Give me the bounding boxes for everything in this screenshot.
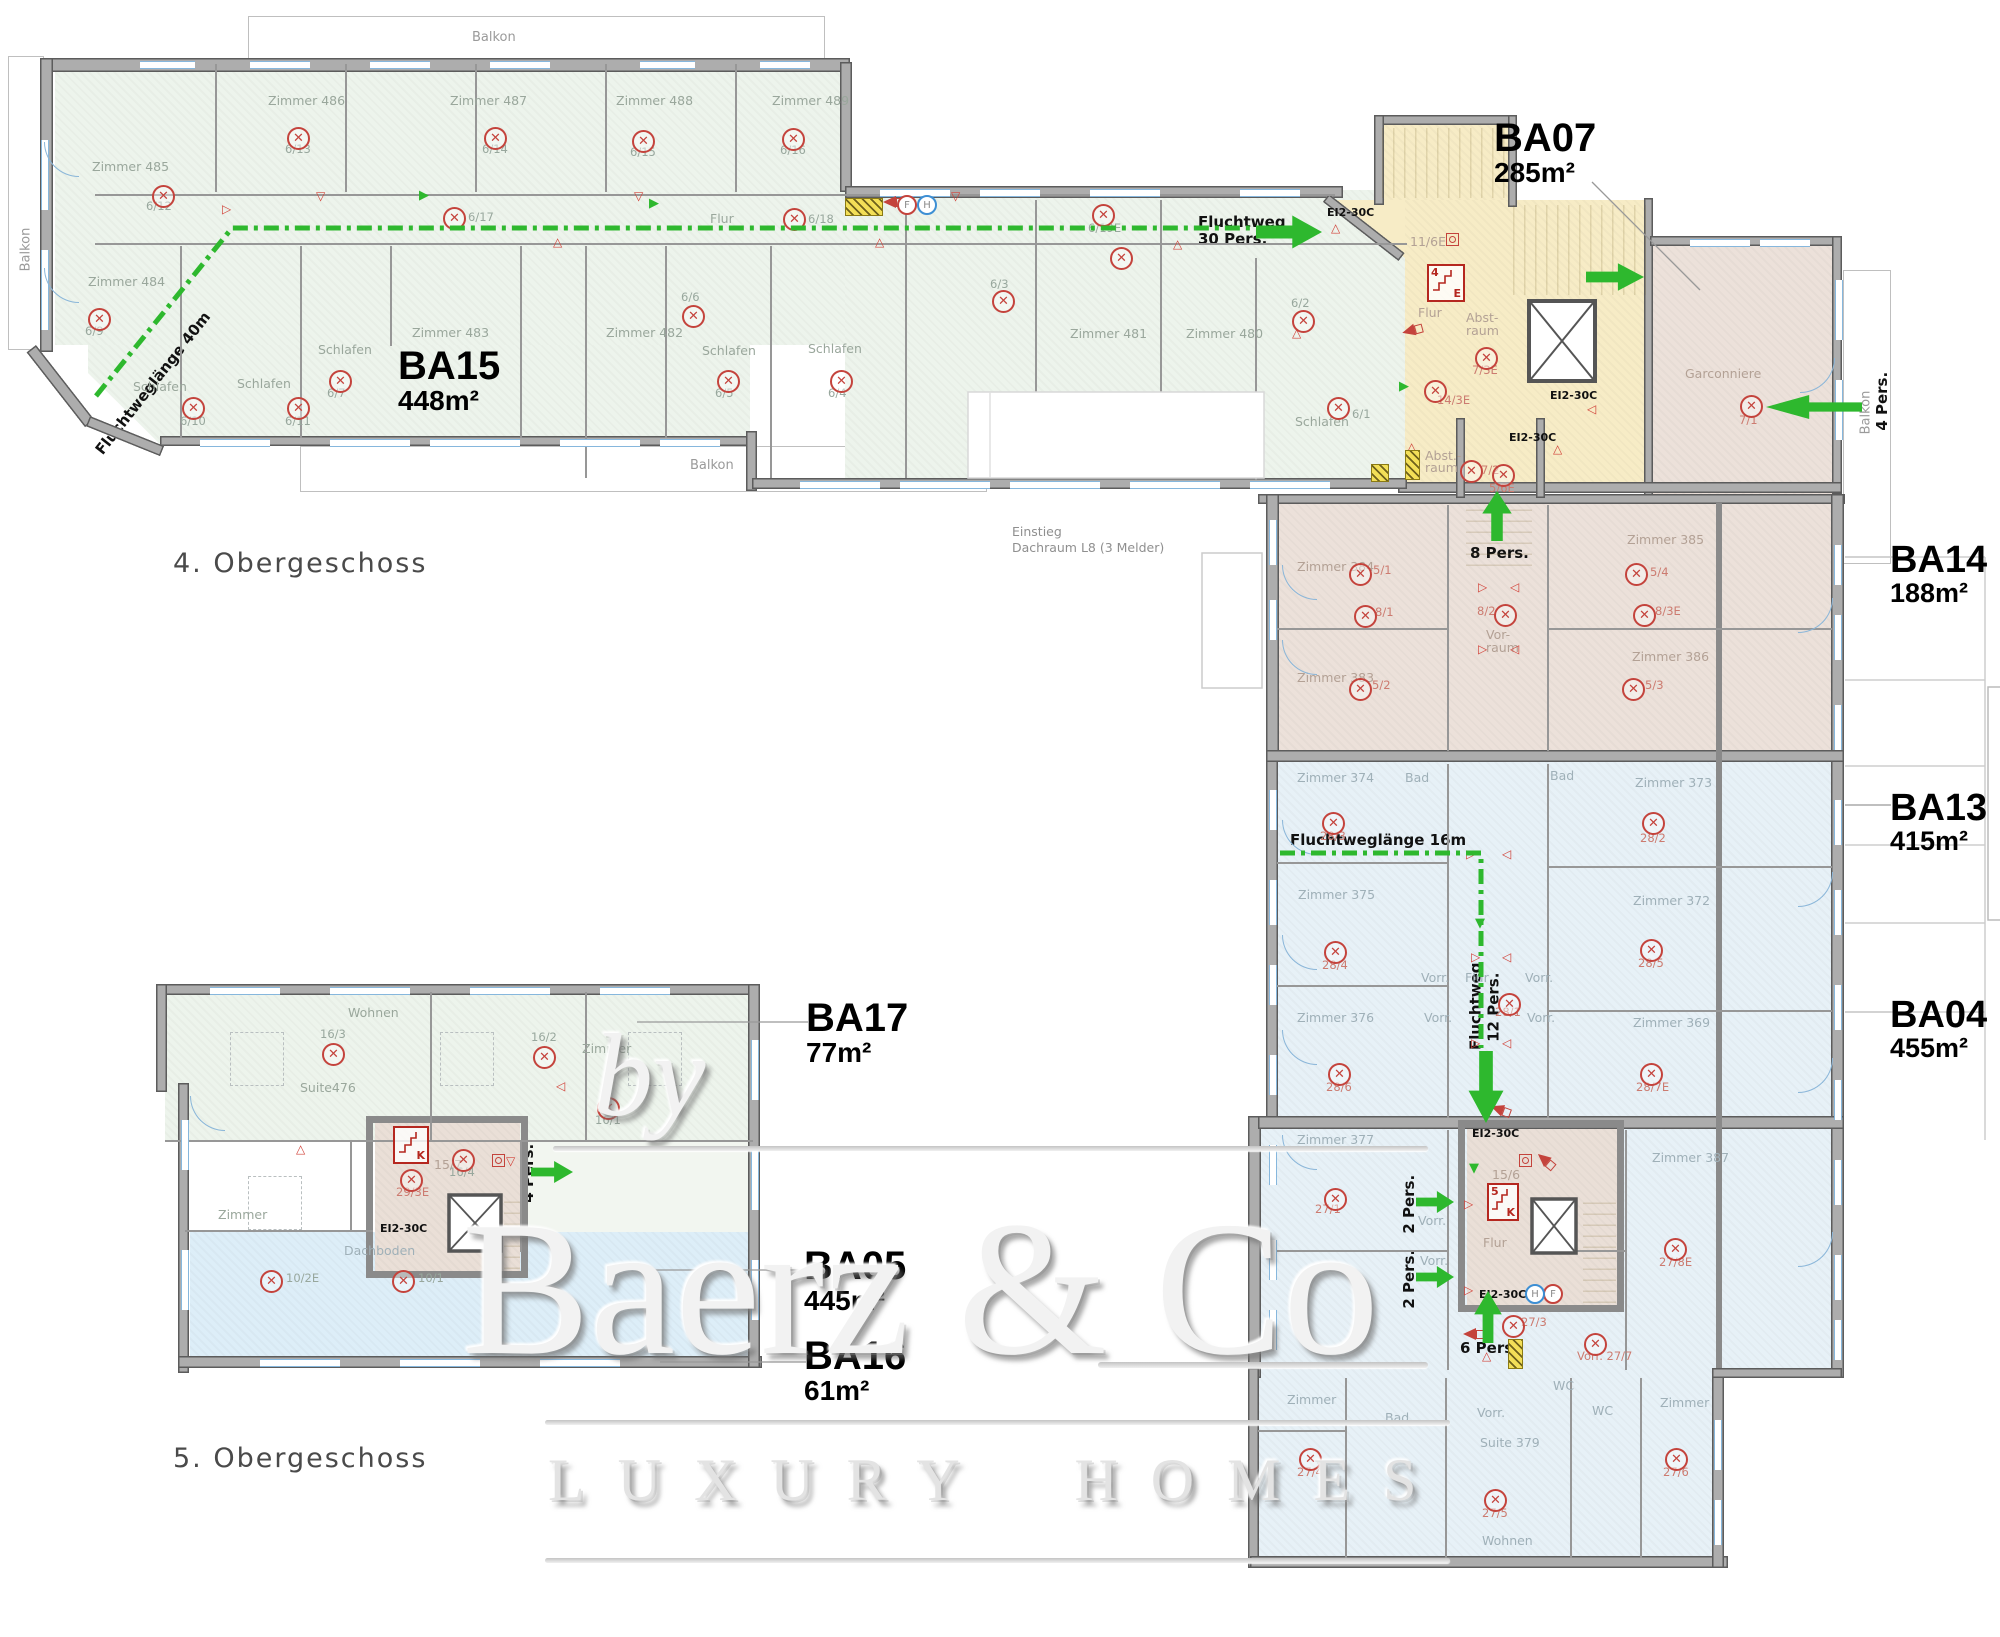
smoke-detector-icon: ✕ [392,1270,415,1293]
window [760,61,810,69]
stair-symbol-ba04: 5 K [1487,1183,1519,1221]
window [1834,1080,1842,1120]
detector-box-icon [1519,1154,1532,1167]
window [250,61,310,69]
smoke-detector-icon: ✕ [1640,1063,1663,1086]
core-wall [1716,503,1722,1368]
smoke-detector-icon: ✕ [1328,1063,1351,1086]
code-label: Vorr. 27/7 [1577,1350,1632,1362]
partition [1625,1130,1627,1370]
window [260,1359,340,1367]
partition [520,1142,522,1252]
direction-triangle-icon: △ [553,236,562,248]
smoke-detector-icon: ✕ [1498,993,1521,1016]
partition [1640,1378,1642,1558]
ba16-area: 61m² [804,1376,906,1405]
room-label: Zimmer 489 [772,94,849,107]
partition [1035,200,1037,478]
direction-triangle-icon: ▷ [1478,581,1487,593]
detector-box-icon [1446,233,1459,246]
room-label: Zimmer 487 [450,94,527,107]
partition [1549,866,1832,868]
partition [1570,1378,1572,1558]
extinguisher-icon [845,198,883,216]
window [1269,1055,1277,1095]
room-label: Vorr. [1527,1011,1555,1024]
wall [840,62,852,192]
code-label: 8/3E [1655,605,1681,617]
stair-symbol-og5: K [393,1126,429,1164]
window [140,61,195,69]
einstieg-line2: Dachraum L8 (3 Melder) [1012,540,1164,556]
route-triangle-icon: ▼ [1475,917,1485,930]
window [1834,800,1842,845]
smoke-detector-icon: ✕ [1324,1188,1347,1211]
room-label: Vorr. [1421,971,1449,984]
floor-plan-canvas: Balkon Balkon Balkon Balkon [0,0,2000,1637]
window [1834,705,1842,750]
window [1760,239,1810,247]
ba17-area: 77m² [806,1038,908,1067]
ba13-area: 415m² [1890,827,1987,855]
window [330,439,410,447]
partition [1447,764,1449,1118]
fire-door-label: EI2-30C [380,1223,427,1235]
direction-triangle-icon: ▽ [316,190,325,202]
window [430,439,520,447]
window [1240,189,1300,197]
window [330,987,410,995]
room-label: Zimmer [1660,1396,1709,1409]
partition [390,246,392,346]
window [1269,520,1277,565]
room-label: Zimmer 483 [412,326,489,339]
window [1834,890,1842,935]
core-wall [366,1271,528,1278]
direction-triangle-icon: ▽ [506,1155,515,1167]
smoke-detector-icon: ✕ [1664,1238,1687,1261]
smoke-detector-icon: ✕ [1484,1489,1507,1512]
ba16-name: BA16 [804,1336,906,1376]
window [400,1359,480,1367]
window [370,61,430,69]
partition [1277,862,1447,864]
fire-door-label: EI2-30C [1550,390,1597,402]
room-label: Zimmer 372 [1633,894,1710,907]
room-label: Zimmer 482 [606,326,683,339]
room-label: Dachboden [344,1244,415,1257]
window [1269,1240,1277,1280]
partition [1277,1250,1447,1252]
partition [350,1142,352,1230]
direction-triangle-icon: ▷ [1466,848,1475,860]
smoke-detector-icon: ✕ [287,127,310,150]
smoke-detector-icon: ✕ [260,1270,283,1293]
smoke-detector-icon: ✕ [1322,812,1345,835]
partition [905,200,907,478]
floor-label-og5: 5. Obergeschoss [173,1443,427,1474]
smoke-detector-icon: ✕ [1460,460,1483,483]
room-label: Bad [1385,1411,1409,1424]
fire-symbol-icon: F [1543,1284,1563,1304]
partition [605,64,607,192]
partition [1447,1130,1449,1370]
partition [1277,628,1447,630]
room-label: Zimmer 369 [1633,1016,1710,1029]
partition [1345,1378,1347,1558]
smoke-detector-icon: ✕ [1502,1315,1525,1338]
code-label: 5/2 [1372,679,1391,691]
window [1714,1420,1722,1470]
balkon-label-top: Balkon [472,30,516,45]
window [1090,189,1160,197]
window [181,1250,189,1310]
window [1714,1500,1722,1545]
room-label: Schlafen [702,344,756,357]
window [1834,1320,1842,1360]
partition [665,246,667,438]
core-wall [1458,1120,1624,1127]
room-label: Bad [1405,771,1429,784]
partition [1549,628,1832,630]
room-label: Vorr. [1424,1011,1452,1024]
stair-treads [1583,1200,1616,1303]
fire-symbol-icon: F [897,195,917,215]
ba17-name: BA17 [806,998,908,1038]
smoke-detector-icon: ✕ [452,1149,475,1172]
room-label: Zimmer 488 [616,94,693,107]
window [200,439,270,447]
window [1269,1145,1277,1185]
ba05-area: 445m² [804,1286,906,1315]
direction-triangle-icon: △ [875,236,884,248]
label-ba15: BA15 448m² [398,346,500,415]
einstieg-note: Einstieg Dachraum L8 (3 Melder) [1012,524,1164,557]
code-label: 10/1 [418,1272,444,1284]
window [1250,481,1330,489]
room-label: Zimmer 374 [1297,771,1374,784]
direction-triangle-icon: ▷ [1464,1284,1473,1296]
partition [165,1140,753,1142]
right-edge-balcony [1988,687,2000,920]
smoke-detector-icon: ✕ [597,1097,620,1120]
partition [185,1230,373,1232]
window [1834,1160,1842,1205]
code-label: 6/6 [681,291,700,303]
core-wall [366,1116,528,1123]
smoke-detector-icon: ✕ [484,127,507,150]
room-label: Flur [1483,1236,1507,1249]
window [980,189,1040,197]
direction-triangle-icon: ▽ [951,190,960,202]
room-label: Wohnen [348,1006,399,1019]
partition [345,64,347,192]
partition [1547,764,1549,1118]
smoke-detector-icon: ✕ [1349,563,1372,586]
route-triangle-icon: ▼ [1469,1162,1479,1175]
window [210,987,280,995]
smoke-detector-icon: ✕ [830,370,853,393]
room-label: Flur [1465,971,1489,984]
hydrant-symbol-icon: H [917,195,937,215]
stair-treads [1382,128,1508,198]
balkon-label-left: Balkon [18,228,33,272]
stair-symbol-ba07: 4 E [1427,264,1465,302]
room-label: Suite476 [300,1081,356,1094]
partition [430,992,432,1140]
code-label: 6/3 [990,278,1009,290]
smoke-detector-icon: ✕ [1584,1333,1607,1356]
room-label: WC [1592,1404,1613,1417]
fire-door-label: EI2-30C [1327,207,1374,219]
partition [585,992,587,1140]
stair-number: 4 [1431,266,1439,279]
direction-triangle-icon: △ [1173,238,1182,250]
room-label: Zimmer 481 [1070,327,1147,340]
room-label: Vorr. [1420,1254,1448,1267]
direction-triangle-icon: ◁ [1502,1037,1511,1049]
code-label: 5/1 [1373,564,1392,576]
smoke-detector-icon: ✕ [400,1169,423,1192]
window [751,1150,759,1210]
partition [215,64,217,192]
code-label: 10/2E [286,1272,319,1284]
wall [1258,494,1845,504]
room-label: Vorr. [1525,971,1553,984]
window [800,481,880,489]
fire-door-label: EI2-30C [1509,432,1556,444]
ba04-name: BA04 [1890,996,1987,1034]
room-label: Zimmer 373 [1635,776,1712,789]
room-label: Vorr. [1477,1406,1505,1419]
ba15-area: 448m² [398,386,500,415]
room-label: raum [1425,461,1458,474]
west-balcony-outline [1202,553,1262,688]
label-ba05: BA05 445m² [804,1246,906,1315]
partition [1255,258,1257,480]
label-ba04: BA04 455m² [1890,996,1987,1062]
partition [1549,1010,1832,1012]
stair-letter: K [416,1149,425,1162]
smoke-detector-icon: ✕ [1475,347,1498,370]
smoke-detector-icon: ✕ [322,1043,345,1066]
balcony-top [248,16,825,64]
window [490,61,550,69]
room-label: Zimmer 484 [88,275,165,288]
window [1269,600,1277,640]
smoke-detector-icon: ✕ [182,397,205,420]
direction-triangle-icon: △ [1482,1350,1491,1362]
wall [1250,1556,1728,1568]
balcony-left [8,56,44,350]
wall [1248,1368,1259,1568]
stair-letter: E [1453,287,1461,300]
smoke-detector-icon: ✕ [1327,397,1350,420]
partition [1160,200,1162,478]
window [1834,545,1842,585]
smoke-detector-icon: ✕ [1299,1448,1322,1471]
ba07-name: BA07 [1494,118,1596,158]
room-label: Flur [710,212,734,225]
wall [1248,1116,1261,1378]
room-label: Bad [1550,769,1574,782]
elevator-icon-og5 [447,1193,503,1253]
direction-triangle-icon: ◁ [1587,403,1596,415]
elevator-icon-ba04 [1530,1197,1578,1255]
ba14-area: 188m² [1890,579,1987,607]
smoke-detector-icon: ✕ [1740,395,1763,418]
room-label: Zimmer 385 [1627,533,1704,546]
code-label: 6/18 [808,213,834,225]
direction-triangle-icon: ◁ [556,1080,565,1092]
balkon-label-bottom: Balkon [690,458,734,473]
direction-triangle-icon: ◁ [1502,951,1511,963]
direction-triangle-icon: △ [1331,222,1340,234]
detector-box-icon [492,1154,505,1167]
room-label: Zimmer 480 [1186,327,1263,340]
window [660,439,720,447]
direction-triangle-icon: △ [1553,443,1562,455]
smoke-detector-icon: ✕ [443,207,466,230]
balkon-label-right: Balkon [1858,391,1873,435]
room-label: Zimmer 485 [92,160,169,173]
fire-door-label: EI2-30C [1472,1128,1519,1140]
einstieg-line1: Einstieg [1012,524,1164,540]
direction-triangle-icon: ▷ [1471,1037,1480,1049]
smoke-detector-icon: ✕ [1092,204,1115,227]
smoke-detector-icon: ✕ [1642,812,1665,835]
code-label: 6/1 [1352,408,1371,420]
partition [1258,1430,1345,1432]
window [640,61,695,69]
route-triangle-icon: ▶ [649,197,659,210]
room-label: Schlafen [318,343,372,356]
window [1269,790,1277,830]
window [751,1040,759,1100]
ba04-area: 455m² [1890,1034,1987,1062]
smoke-detector-icon: ✕ [329,370,352,393]
smoke-detector-icon: ✕ [632,130,655,153]
extinguisher-icon [1405,450,1420,480]
partition [1447,505,1449,751]
room-label: Zimmer 375 [1298,888,1375,901]
smoke-detector-icon: ✕ [1349,678,1372,701]
room-label: Zimmer 486 [268,94,345,107]
smoke-detector-icon: ✕ [1665,1448,1688,1471]
furniture-outline [230,1032,284,1086]
window [540,1359,620,1367]
furniture-outline [440,1032,494,1086]
window [1834,1255,1842,1300]
window [181,1120,189,1170]
furniture-outline [628,1032,682,1086]
partition [95,243,1407,245]
room-label: Flur [1418,306,1442,319]
room-label: 15/6 [1492,1168,1520,1181]
smoke-detector-icon: ✕ [1354,605,1377,628]
direction-triangle-icon: ◁ [1510,581,1519,593]
room-label: raum [1466,324,1499,337]
room-label: Schlafen [808,342,862,355]
code-label: 6/2 [1291,297,1310,309]
smoke-detector-icon: ✕ [1633,604,1656,627]
direction-triangle-icon: ▷ [1464,1198,1473,1210]
floor-label-og4: 4. Obergeschoss [173,548,427,579]
smoke-detector-icon: ✕ [1625,563,1648,586]
window [41,250,49,330]
smoke-detector-icon: ✕ [1494,604,1517,627]
room-label: Zimmer [582,1042,631,1055]
window [1690,239,1750,247]
stair-letter: K [1506,1206,1515,1219]
alarm-horn-icon [1463,1328,1485,1341]
window [600,987,670,995]
room-label: Suite 379 [1480,1436,1540,1449]
hydrant-symbol-icon: H [1525,1284,1545,1304]
label-ba17: BA17 77m² [806,998,908,1067]
window [1269,880,1277,925]
room-label: WC [1553,1379,1574,1392]
code-label: 8/2 [1477,605,1496,617]
window [900,481,990,489]
wall [1536,418,1545,498]
wall [1266,750,1844,762]
direction-triangle-icon: △ [1292,327,1301,339]
smoke-detector-icon: ✕ [88,308,111,331]
smoke-detector-icon: ✕ [717,370,740,393]
smoke-detector-icon: ✕ [1324,941,1347,964]
pers2-text-a: 2 Pers. [1401,1175,1418,1234]
wall [1712,1368,1842,1378]
window [560,439,640,447]
partition [770,246,772,478]
extinguisher-icon [1371,464,1389,482]
label-ba16: BA16 61m² [804,1336,906,1405]
smoke-detector-icon: ✕ [682,305,705,328]
region-ba13 [1275,755,1840,1120]
window [1130,481,1220,489]
partition [735,64,737,192]
core-wall [1617,1120,1624,1312]
window [751,1260,759,1320]
room-label: Zimmer [218,1208,267,1221]
smoke-detector-icon: ✕ [1110,247,1133,270]
smoke-detector-icon: ✕ [1492,464,1515,487]
label-ba07: BA07 285m² [1494,118,1596,187]
smoke-detector-icon: ✕ [992,290,1015,313]
smoke-detector-icon: ✕ [152,185,175,208]
code-label: 5/4 [1650,566,1669,578]
room-label: 11/6E [1410,235,1446,248]
code-label: 16/3 [320,1028,346,1040]
code-label: 6/17 [468,211,494,223]
route-triangle-icon: ▶ [419,189,429,202]
direction-triangle-icon: ▷ [1478,643,1487,655]
room-label: Zimmer 376 [1297,1011,1374,1024]
wall [27,345,95,427]
window [1834,985,1842,1030]
wall [156,984,167,1092]
label-ba13: BA13 415m² [1890,789,1987,855]
room-label: Zimmer 386 [1632,650,1709,663]
room-label: Wohnen [1482,1534,1533,1547]
window [1835,280,1843,340]
window [470,987,550,995]
elevator-icon-ba07 [1527,299,1597,383]
room-label: Zimmer 387 [1652,1151,1729,1164]
code-label: 8/1 [1375,606,1394,618]
code-label: 16/2 [531,1031,557,1043]
